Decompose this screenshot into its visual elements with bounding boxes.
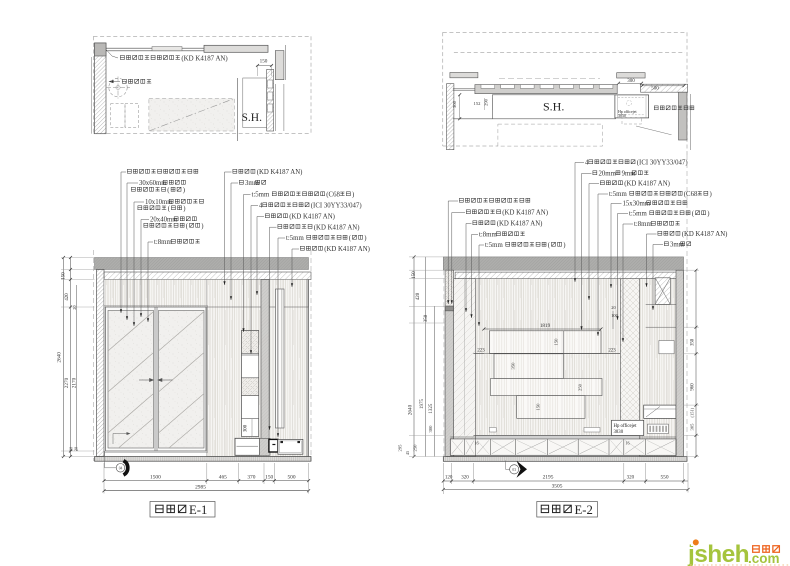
svg-text:(151): (151): [690, 407, 695, 417]
svg-text:.com: .com: [748, 551, 780, 566]
svg-text:(KD K4187 AN): (KD K4187 AN): [289, 214, 335, 221]
svg-text:t:8mm: t:8mm: [479, 232, 497, 239]
svg-text:E-2: E-2: [575, 503, 593, 517]
svg-text:370: 370: [247, 474, 255, 480]
svg-text:960: 960: [691, 383, 696, 391]
svg-text:300: 300: [244, 424, 249, 432]
svg-text:16: 16: [625, 441, 629, 446]
svg-text:t:5mm: t:5mm: [629, 211, 647, 218]
svg-text:): ): [183, 206, 185, 213]
svg-text:(ICI 30YY33/047): (ICI 30YY33/047): [311, 203, 362, 210]
svg-text:t:8mm: t:8mm: [154, 239, 172, 246]
svg-text:465: 465: [219, 474, 227, 480]
svg-text:350: 350: [691, 338, 696, 346]
svg-text:(KD K4187 AN): (KD K4187 AN): [324, 246, 370, 253]
svg-text:1325: 1325: [429, 403, 434, 414]
svg-text:250: 250: [413, 444, 418, 452]
svg-text:(ICI 30YY33/047): (ICI 30YY33/047): [637, 160, 688, 167]
svg-text:(KD K4187 AN): (KD K4187 AN): [502, 210, 548, 217]
svg-text:2195: 2195: [543, 475, 554, 481]
svg-text:4: 4: [259, 203, 263, 210]
svg-text:350: 350: [424, 314, 429, 322]
svg-text:350: 350: [511, 362, 516, 370]
svg-text:): ): [352, 192, 354, 199]
svg-text:1975: 1975: [420, 399, 425, 410]
svg-text:20mm: 20mm: [599, 171, 617, 178]
svg-text:t:5mm: t:5mm: [485, 242, 503, 249]
svg-text:t:8mm: t:8mm: [634, 221, 652, 228]
svg-text:2640: 2640: [408, 404, 414, 415]
svg-text:550: 550: [660, 475, 668, 481]
svg-text:150: 150: [265, 474, 273, 480]
svg-text:(KD K4187 AN): (KD K4187 AN): [497, 221, 543, 228]
svg-text:45: 45: [405, 451, 410, 455]
svg-text:420: 420: [416, 292, 421, 300]
svg-text:2985: 2985: [195, 484, 206, 490]
svg-text:): ): [710, 191, 712, 198]
svg-text:): ): [563, 242, 565, 249]
svg-text:2640: 2640: [57, 352, 63, 363]
svg-text:150: 150: [536, 403, 541, 411]
svg-text:500: 500: [287, 474, 295, 480]
svg-text:500: 500: [651, 86, 659, 91]
svg-text:420: 420: [65, 293, 70, 301]
svg-text:250: 250: [578, 383, 583, 391]
svg-text:t:5mm: t:5mm: [286, 235, 304, 242]
svg-text:03: 03: [512, 468, 516, 472]
svg-text:3830: 3830: [618, 114, 626, 118]
svg-text:223: 223: [477, 348, 485, 353]
svg-text:(C68: (C68: [326, 192, 340, 199]
svg-text:295: 295: [398, 444, 403, 452]
svg-text:(KD K4187 AN): (KD K4187 AN): [257, 169, 303, 176]
svg-text:20: 20: [74, 447, 79, 451]
svg-text:320: 320: [627, 476, 635, 481]
svg-text:4: 4: [585, 160, 589, 167]
svg-text:152: 152: [474, 101, 482, 106]
svg-text:320: 320: [461, 476, 469, 481]
svg-text:(KD K4187 AN): (KD K4187 AN): [624, 181, 670, 188]
svg-text:223: 223: [608, 348, 616, 353]
svg-text:S.H.: S.H.: [242, 112, 263, 124]
svg-text:1500: 1500: [150, 474, 161, 480]
svg-text:300: 300: [428, 425, 433, 433]
svg-text:04: 04: [119, 467, 123, 471]
svg-text:120: 120: [445, 476, 453, 481]
svg-text:t:5mm: t:5mm: [252, 192, 270, 199]
svg-text:150: 150: [260, 59, 268, 65]
svg-text:): ): [707, 211, 709, 218]
svg-text:S.H.: S.H.: [543, 100, 564, 114]
svg-text:16: 16: [474, 441, 478, 446]
svg-text:Hp officejet: Hp officejet: [614, 424, 638, 429]
svg-text:9mm: 9mm: [622, 171, 637, 178]
svg-text:150: 150: [62, 272, 67, 280]
svg-text:): ): [364, 235, 366, 242]
svg-text:290: 290: [483, 98, 488, 106]
svg-text:150: 150: [554, 338, 559, 346]
svg-text:(KD K4187 AN): (KD K4187 AN): [314, 224, 360, 231]
svg-text:t:5mm: t:5mm: [609, 191, 627, 198]
svg-text:20: 20: [72, 305, 77, 309]
svg-text:300: 300: [452, 100, 457, 108]
svg-text:305: 305: [690, 423, 695, 431]
svg-text:(C68: (C68: [684, 191, 698, 198]
svg-text:(KD K4187 AN): (KD K4187 AN): [682, 231, 728, 238]
svg-text:2270: 2270: [64, 377, 70, 388]
svg-text:150: 150: [412, 271, 417, 279]
svg-text:3505: 3505: [552, 483, 563, 489]
svg-text:(KD K4187 AN): (KD K4187 AN): [181, 55, 227, 62]
svg-text:): ): [183, 187, 185, 194]
svg-text:3830: 3830: [614, 430, 624, 435]
svg-text:): ): [201, 223, 203, 230]
svg-text:E-1: E-1: [189, 503, 207, 517]
svg-text:1819: 1819: [540, 323, 551, 329]
